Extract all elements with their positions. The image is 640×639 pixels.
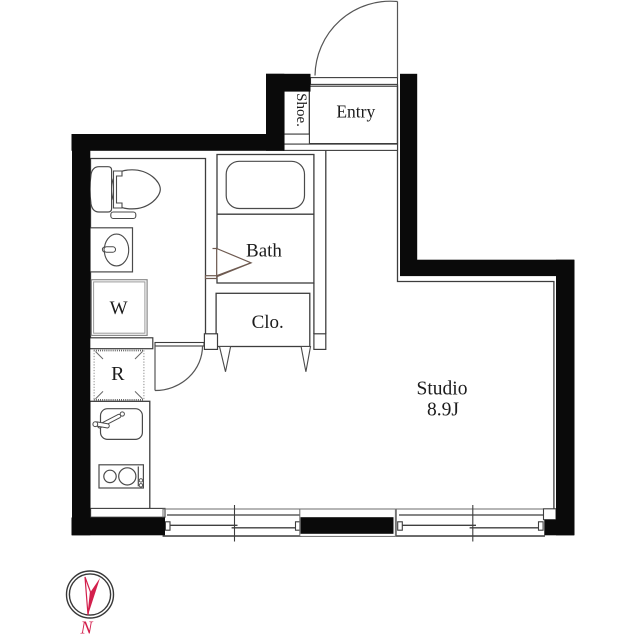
svg-text:Bath: Bath: [246, 241, 282, 262]
svg-text:Entry: Entry: [336, 102, 375, 122]
svg-text:W: W: [110, 298, 128, 319]
svg-text:Shoe.: Shoe.: [293, 93, 309, 127]
svg-text:Studio: Studio: [417, 379, 468, 400]
svg-text:Clo.: Clo.: [252, 312, 284, 333]
svg-text:N: N: [79, 618, 93, 638]
svg-text:8.9J: 8.9J: [427, 400, 459, 421]
svg-text:R: R: [111, 363, 125, 385]
